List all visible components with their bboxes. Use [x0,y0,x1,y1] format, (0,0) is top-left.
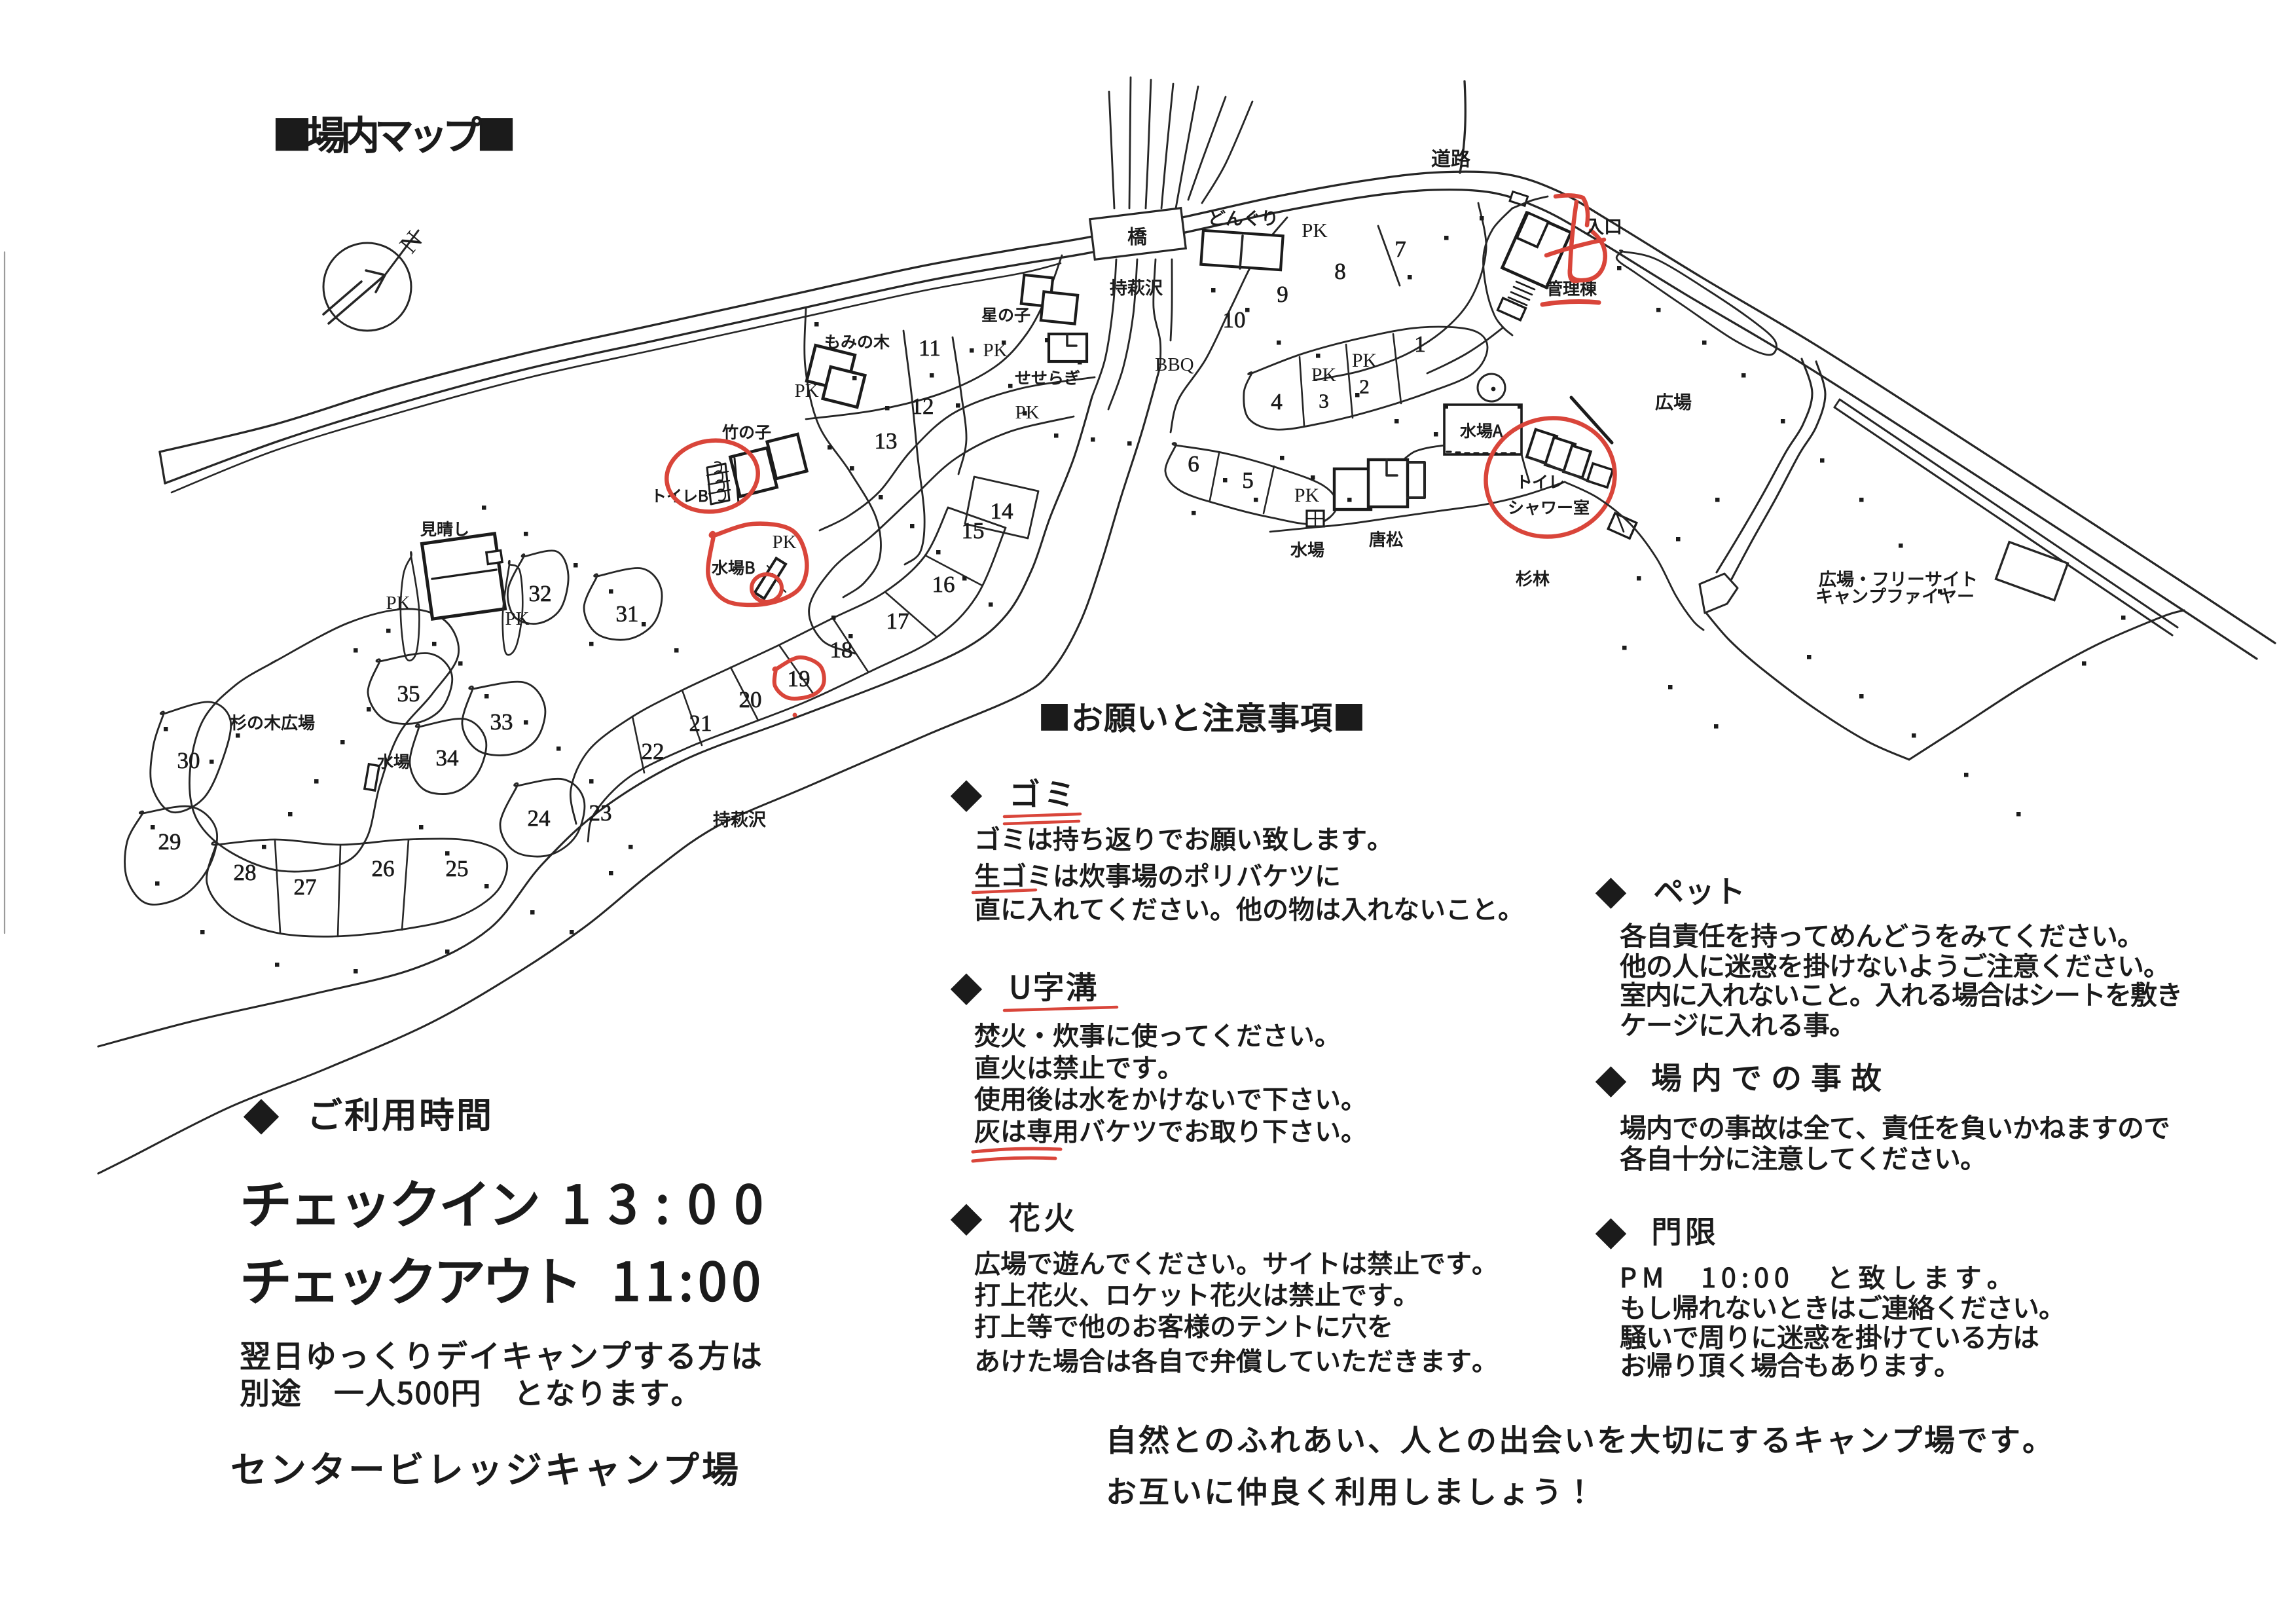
svg-text:14: 14 [991,498,1013,524]
svg-text:29: 29 [158,829,181,855]
svg-text:28: 28 [234,860,257,885]
svg-text:31: 31 [616,601,639,627]
svg-text:33: 33 [490,709,513,735]
svg-text:26: 26 [372,856,395,881]
svg-text:PK: PK [1302,219,1328,242]
svg-text:5: 5 [1242,468,1254,493]
svg-text:20: 20 [739,687,762,712]
svg-text:30: 30 [177,748,200,773]
svg-text:19: 19 [788,666,811,692]
svg-text:8: 8 [1334,259,1346,284]
svg-text:15: 15 [962,518,985,544]
svg-text:6: 6 [1188,451,1199,477]
svg-text:17: 17 [886,608,909,634]
svg-text:10: 10 [1223,307,1246,333]
svg-text:PK: PK [1311,364,1337,386]
svg-text:PK: PK [386,593,410,614]
svg-text:7: 7 [1394,236,1406,262]
svg-text:25: 25 [446,856,469,881]
svg-text:PK: PK [505,608,529,629]
svg-text:2: 2 [1359,375,1370,398]
svg-text:1: 1 [1414,331,1426,357]
svg-text:PK: PK [1015,402,1039,423]
svg-text:27: 27 [294,874,317,900]
svg-text:PK: PK [772,532,796,553]
svg-text:BBQ: BBQ [1155,354,1194,375]
svg-text:PK: PK [1352,350,1377,371]
svg-text:24: 24 [528,805,551,831]
svg-text:3: 3 [1319,390,1329,413]
svg-text:32: 32 [529,581,552,606]
svg-text:11: 11 [919,335,941,361]
svg-text:PK: PK [794,380,818,401]
svg-text:16: 16 [932,572,955,597]
svg-text:13: 13 [875,428,898,454]
svg-text:22: 22 [642,739,665,764]
svg-text:21: 21 [689,710,712,736]
svg-text:18: 18 [830,637,853,663]
svg-text:23: 23 [589,800,612,826]
svg-text:4: 4 [1271,389,1283,415]
svg-text:PK: PK [1294,485,1320,506]
svg-text:34: 34 [436,745,459,771]
svg-text:35: 35 [397,681,420,707]
svg-text:9: 9 [1277,282,1288,307]
svg-text:12: 12 [911,394,934,419]
